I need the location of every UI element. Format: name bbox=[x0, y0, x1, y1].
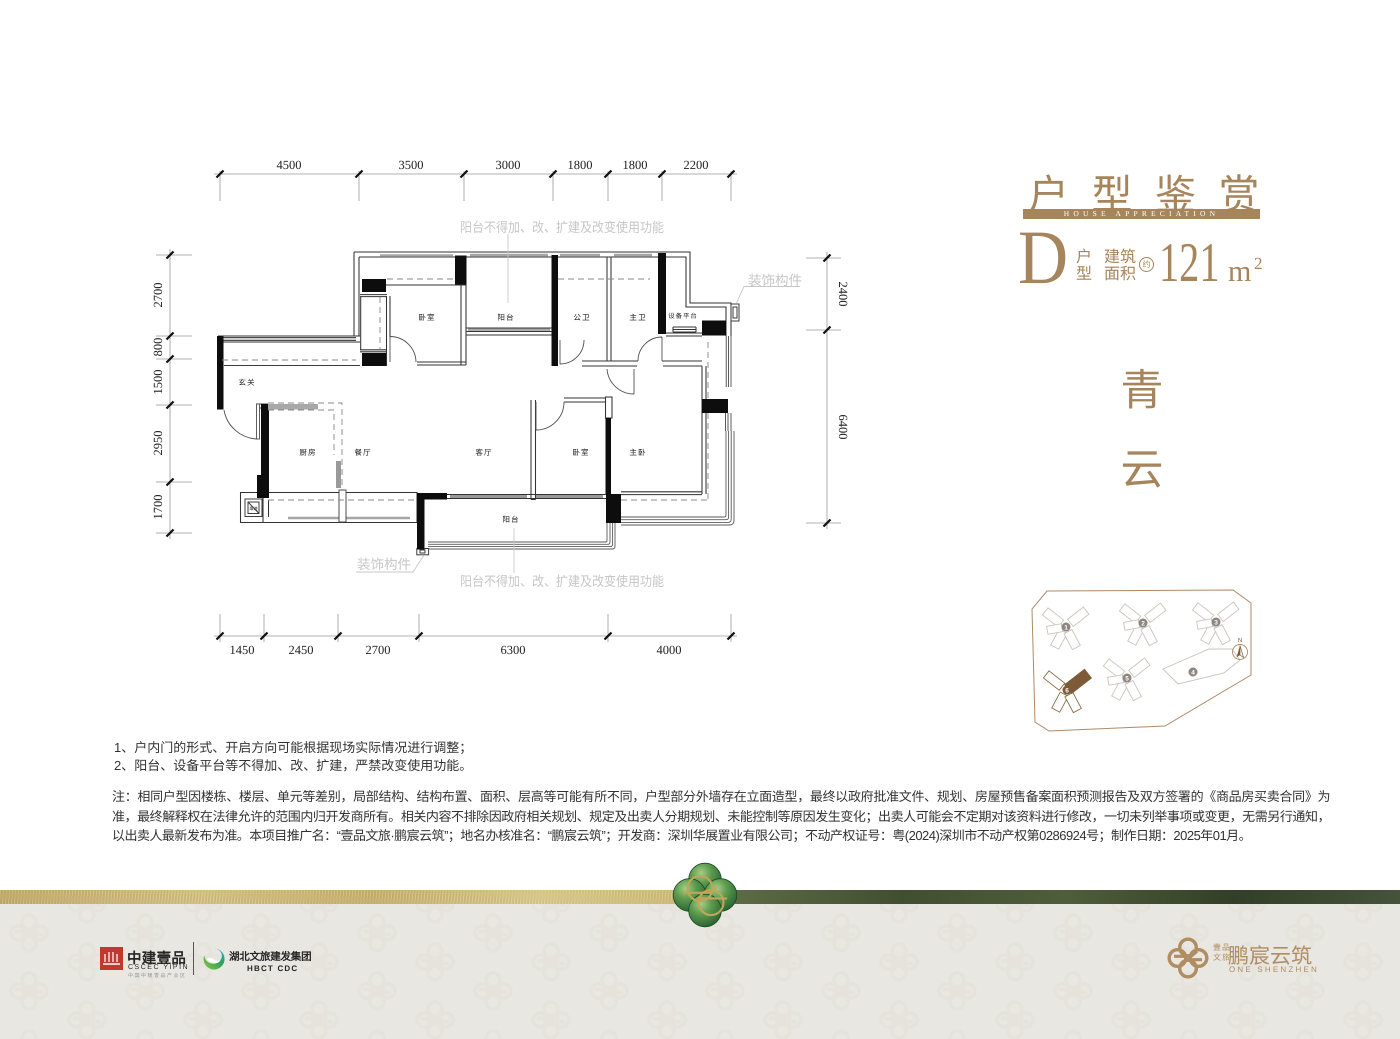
svg-text:N: N bbox=[1238, 637, 1242, 644]
svg-text:1: 1 bbox=[1064, 625, 1068, 632]
svg-text:餐厅: 餐厅 bbox=[354, 448, 371, 457]
svg-text:3: 3 bbox=[1214, 620, 1218, 627]
svg-text:卧室: 卧室 bbox=[418, 313, 435, 322]
svg-text:2: 2 bbox=[1141, 621, 1145, 628]
svg-text:2700: 2700 bbox=[366, 643, 391, 657]
svg-text:阳台不得加、改、扩建及改变使用功能: 阳台不得加、改、扩建及改变使用功能 bbox=[460, 574, 664, 589]
svg-text:2700: 2700 bbox=[151, 283, 165, 308]
svg-text:玄关: 玄关 bbox=[238, 378, 255, 387]
svg-text:设备平台: 设备平台 bbox=[668, 312, 698, 320]
svg-text:6400: 6400 bbox=[836, 415, 850, 440]
svg-text:客厅: 客厅 bbox=[475, 448, 492, 457]
svg-text:1800: 1800 bbox=[623, 158, 648, 172]
svg-text:4500: 4500 bbox=[277, 158, 302, 172]
svg-text:阳台不得加、改、扩建及改变使用功能: 阳台不得加、改、扩建及改变使用功能 bbox=[460, 220, 664, 235]
svg-text:2950: 2950 bbox=[151, 431, 165, 456]
svg-text:3500: 3500 bbox=[399, 158, 424, 172]
svg-text:800: 800 bbox=[151, 338, 165, 357]
svg-text:主卫: 主卫 bbox=[629, 313, 646, 322]
svg-text:主卧: 主卧 bbox=[629, 448, 646, 457]
svg-text:阳台: 阳台 bbox=[497, 313, 514, 322]
svg-text:1700: 1700 bbox=[151, 495, 165, 520]
svg-text:1450: 1450 bbox=[230, 643, 255, 657]
svg-text:5: 5 bbox=[1125, 676, 1129, 683]
svg-text:6: 6 bbox=[1065, 688, 1069, 695]
svg-text:烟道: 烟道 bbox=[249, 506, 258, 511]
svg-text:3000: 3000 bbox=[496, 158, 521, 172]
svg-text:装饰构件: 装饰构件 bbox=[748, 273, 802, 288]
svg-text:2200: 2200 bbox=[684, 158, 709, 172]
svg-text:4000: 4000 bbox=[657, 643, 682, 657]
svg-text:4: 4 bbox=[1191, 670, 1195, 677]
svg-text:卧室: 卧室 bbox=[572, 448, 589, 457]
svg-text:公卫: 公卫 bbox=[573, 313, 590, 322]
svg-text:1500: 1500 bbox=[151, 370, 165, 395]
svg-text:厨房: 厨房 bbox=[299, 448, 316, 457]
svg-text:2450: 2450 bbox=[289, 643, 314, 657]
svg-text:6300: 6300 bbox=[501, 643, 526, 657]
svg-text:2400: 2400 bbox=[836, 282, 850, 307]
svg-text:1800: 1800 bbox=[568, 158, 593, 172]
svg-text:装饰构件: 装饰构件 bbox=[357, 557, 411, 572]
svg-text:阳台: 阳台 bbox=[502, 515, 519, 524]
